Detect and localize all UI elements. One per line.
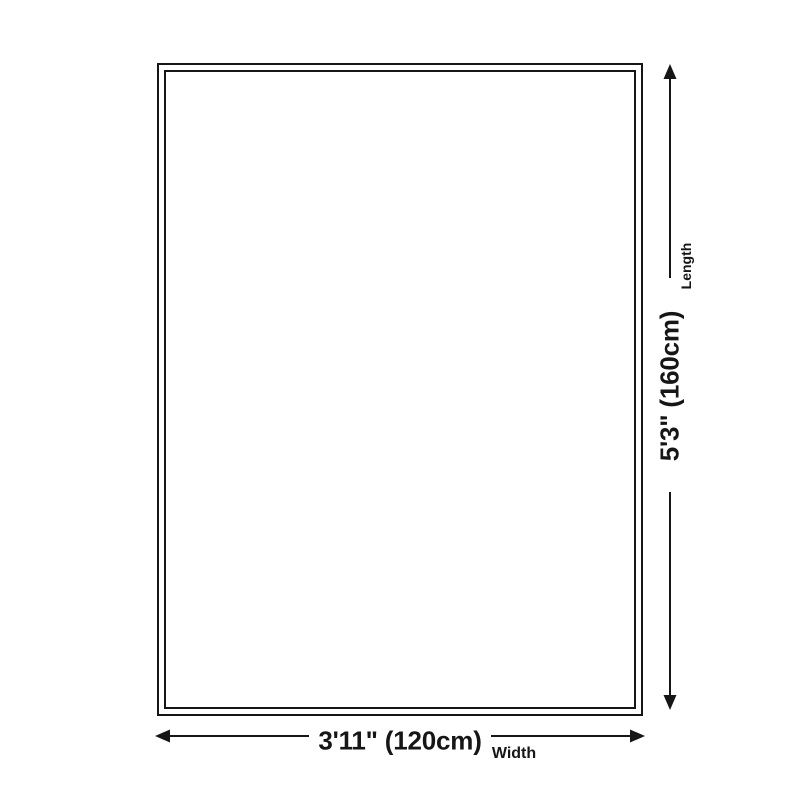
width-dimension-label: Width: [492, 745, 536, 763]
arrow-left-icon: [155, 730, 170, 743]
arrow-down-icon: [664, 695, 677, 710]
dimension-diagram: 3'11" (120cm) Width 5'3" (160cm) Length: [0, 0, 800, 800]
arrow-right-icon: [630, 730, 645, 743]
length-dimension-value: 5'3" (160cm): [655, 311, 686, 462]
width-dimension-value: 3'11" (120cm): [318, 726, 481, 757]
length-dimension-label: Length: [678, 243, 694, 290]
arrow-up-icon: [664, 64, 677, 79]
